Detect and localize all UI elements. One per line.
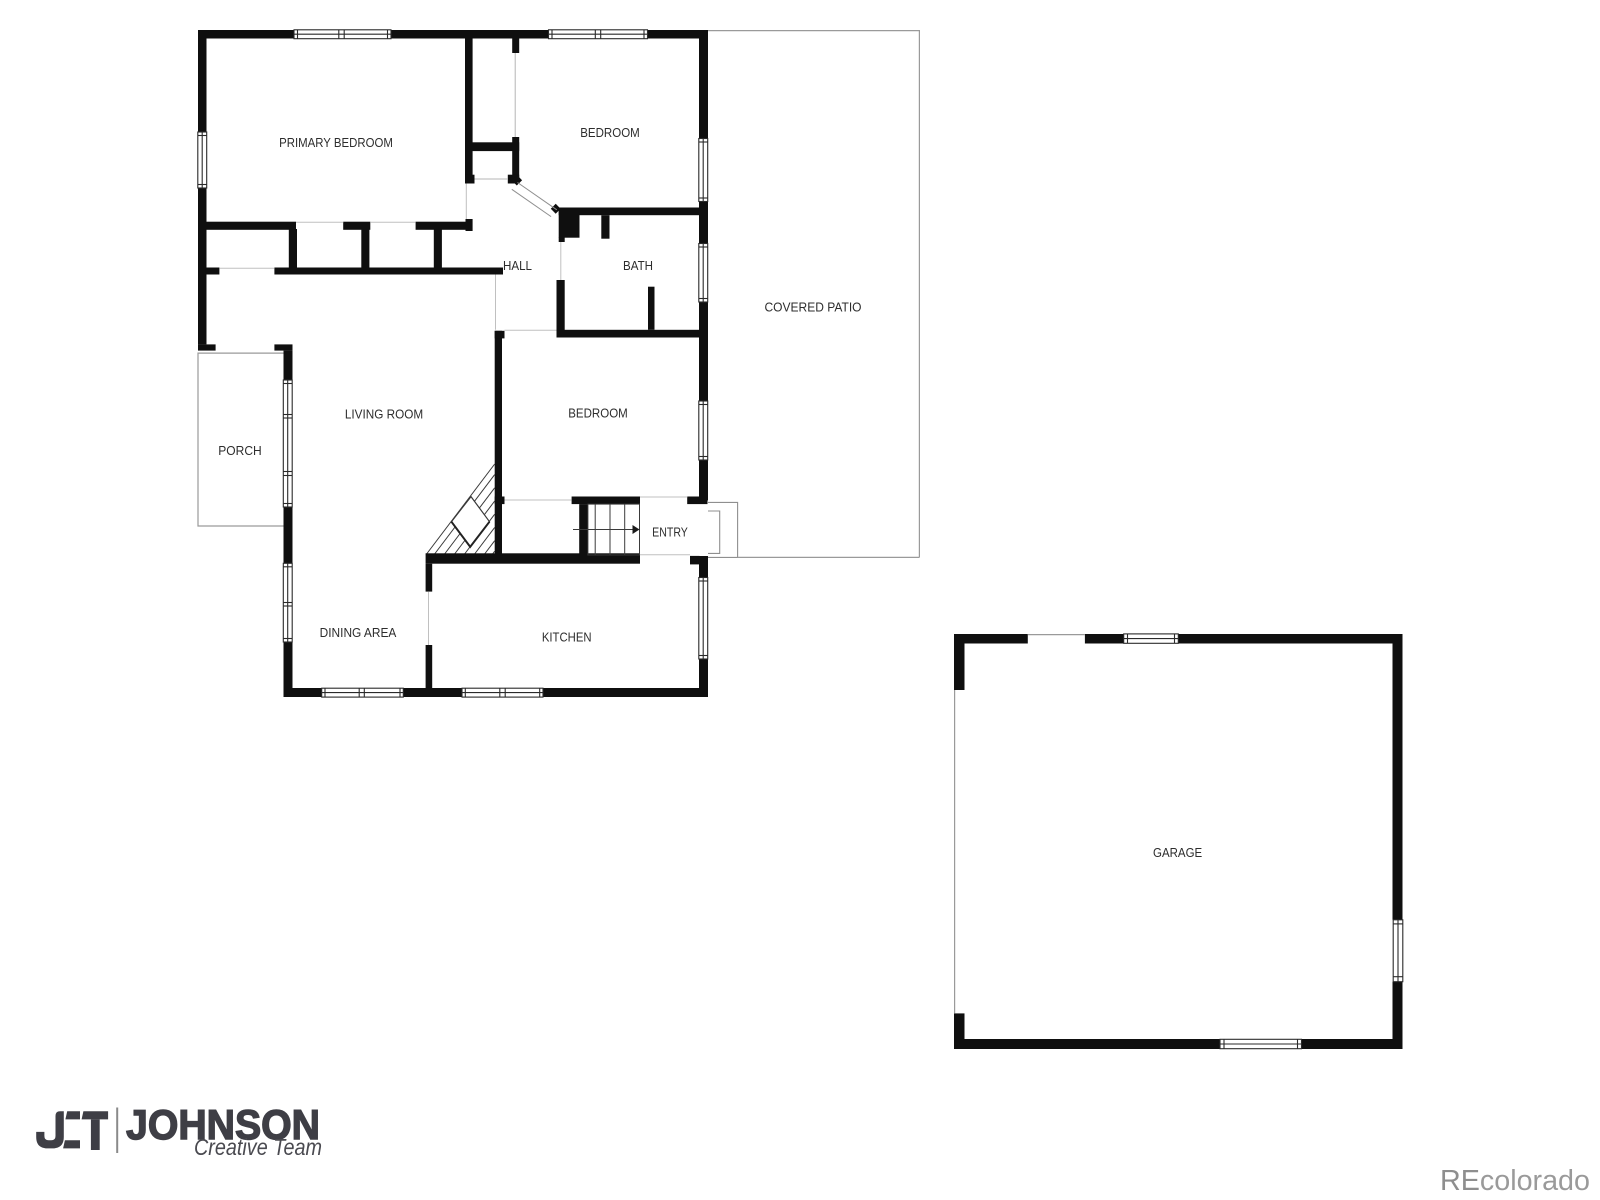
- svg-text:PRIMARY BEDROOM: PRIMARY BEDROOM: [279, 135, 393, 150]
- svg-text:DINING AREA: DINING AREA: [320, 625, 397, 640]
- svg-text:ENTRY: ENTRY: [652, 525, 688, 540]
- svg-text:BEDROOM: BEDROOM: [580, 125, 640, 140]
- svg-text:BATH: BATH: [623, 258, 653, 273]
- svg-text:GARAGE: GARAGE: [1153, 845, 1202, 860]
- svg-text:BEDROOM: BEDROOM: [568, 406, 628, 421]
- svg-text:REcolorado: REcolorado: [1440, 1165, 1590, 1197]
- svg-text:KITCHEN: KITCHEN: [542, 630, 592, 645]
- svg-text:PORCH: PORCH: [218, 443, 261, 458]
- svg-text:LIVING ROOM: LIVING ROOM: [345, 407, 423, 422]
- svg-text:COVERED PATIO: COVERED PATIO: [765, 300, 862, 315]
- svg-text:HALL: HALL: [503, 258, 532, 273]
- svg-text:Creative Team: Creative Team: [194, 1134, 322, 1160]
